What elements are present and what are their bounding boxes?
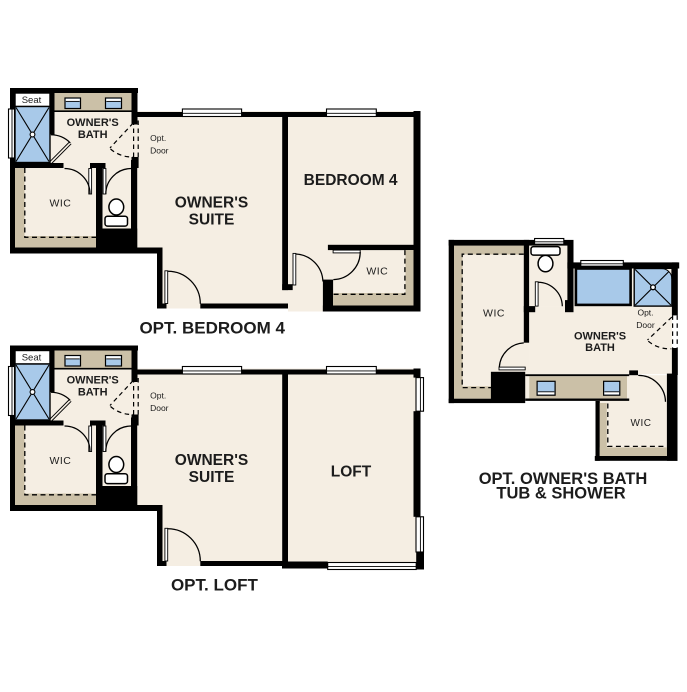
svg-text:Seat: Seat — [22, 95, 42, 106]
svg-text:SUITE: SUITE — [189, 469, 235, 486]
svg-text:SUITE: SUITE — [189, 211, 235, 228]
svg-text:WIC: WIC — [631, 418, 652, 429]
svg-text:Door: Door — [150, 145, 169, 155]
svg-text:OWNER'S: OWNER'S — [67, 375, 119, 387]
svg-text:BEDROOM 4: BEDROOM 4 — [304, 172, 398, 189]
svg-text:WIC: WIC — [49, 198, 71, 210]
svg-text:OWNER'S: OWNER'S — [175, 195, 248, 212]
svg-text:Opt.: Opt. — [637, 307, 653, 317]
svg-text:WIC: WIC — [49, 455, 71, 467]
svg-text:OWNER'S: OWNER'S — [574, 330, 626, 342]
svg-text:Door: Door — [150, 403, 169, 413]
svg-text:WIC: WIC — [483, 308, 505, 320]
svg-text:LOFT: LOFT — [331, 464, 372, 481]
svg-text:BATH: BATH — [585, 342, 615, 354]
svg-text:OWNER'S: OWNER'S — [175, 452, 248, 469]
svg-text:Seat: Seat — [22, 353, 42, 364]
svg-text:Opt.: Opt. — [150, 133, 166, 143]
svg-text:BATH: BATH — [78, 129, 108, 141]
svg-text:BATH: BATH — [78, 387, 108, 399]
svg-text:OPT. BEDROOM 4: OPT. BEDROOM 4 — [139, 318, 285, 337]
svg-text:Opt.: Opt. — [150, 391, 166, 401]
svg-text:OPT. LOFT: OPT. LOFT — [171, 575, 259, 594]
svg-text:OWNER'S: OWNER'S — [67, 117, 119, 129]
svg-text:Door: Door — [636, 320, 655, 330]
svg-text:TUB & SHOWER: TUB & SHOWER — [496, 485, 625, 503]
svg-text:WIC: WIC — [366, 265, 388, 277]
